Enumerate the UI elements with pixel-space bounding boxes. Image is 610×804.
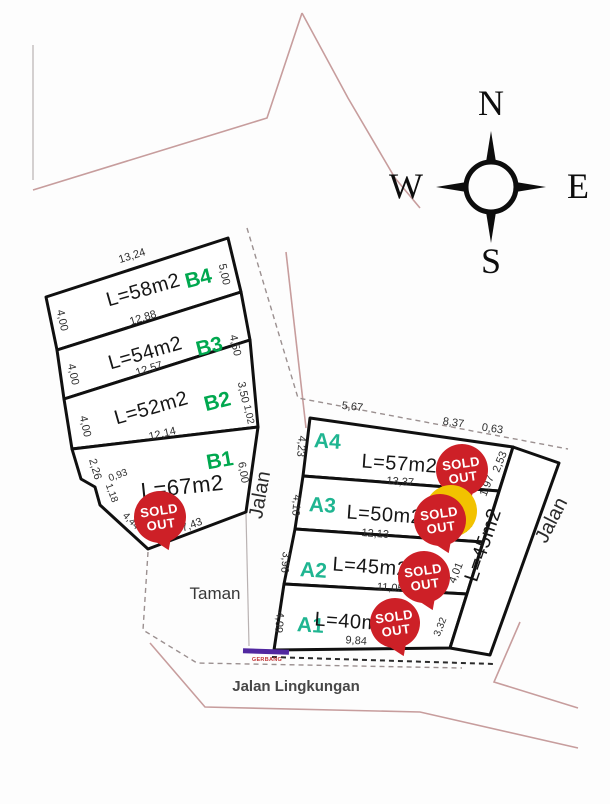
area-label-taman: Taman — [189, 584, 240, 603]
dim-a4-top1: 5,67 — [341, 400, 364, 415]
site-plan-page: N E W S 13,24 L=58m2 B4 5,00 4,00 12,88 … — [0, 0, 610, 804]
boundary-line-bottom-road — [150, 643, 578, 748]
dim-a4-top3: 0,63 — [481, 422, 504, 437]
dashed-line-a-block-bottom — [272, 657, 494, 664]
compass-circle — [466, 162, 516, 212]
compass-rose: N E W S — [389, 83, 589, 281]
compass-label-south: S — [481, 241, 501, 281]
lot-id-b1: B1 — [205, 447, 236, 474]
compass-label-east: E — [567, 166, 589, 206]
gerbang-label: GERBANG — [252, 657, 282, 663]
line-corridor-lower — [246, 514, 249, 646]
dim-a2-left: 3,96 — [278, 551, 292, 573]
road-label-jalan-lingkungan: Jalan Lingkungan — [232, 678, 360, 695]
compass-label-north: N — [478, 83, 504, 123]
boundary-line-corridor — [286, 252, 306, 428]
lot-id-a3: A3 — [308, 493, 336, 518]
compass-label-west: W — [389, 166, 423, 206]
lot-id-a2: A2 — [299, 558, 327, 583]
dim-a4-left: 4,23 — [294, 435, 308, 457]
dim-a4-top2: 8,37 — [442, 416, 465, 431]
boundary-line-topleft — [33, 13, 302, 190]
dim-a1-bottom: 9,84 — [345, 634, 367, 647]
site-plan-svg: N E W S 13,24 L=58m2 B4 5,00 4,00 12,88 … — [0, 0, 610, 804]
dim-b4-top: 13,24 — [117, 246, 147, 266]
gerbang-marker: GERBANG — [243, 648, 289, 663]
boundary-line-bottomright — [494, 622, 578, 708]
dim-a3-left: 4,10 — [289, 494, 303, 516]
dim-a3-bottom: 12,13 — [361, 527, 389, 541]
dim-a4-bottom: 13,37 — [386, 475, 414, 489]
lot-id-a4: A4 — [313, 429, 342, 454]
dim-a1-left: 4,09 — [272, 611, 286, 633]
